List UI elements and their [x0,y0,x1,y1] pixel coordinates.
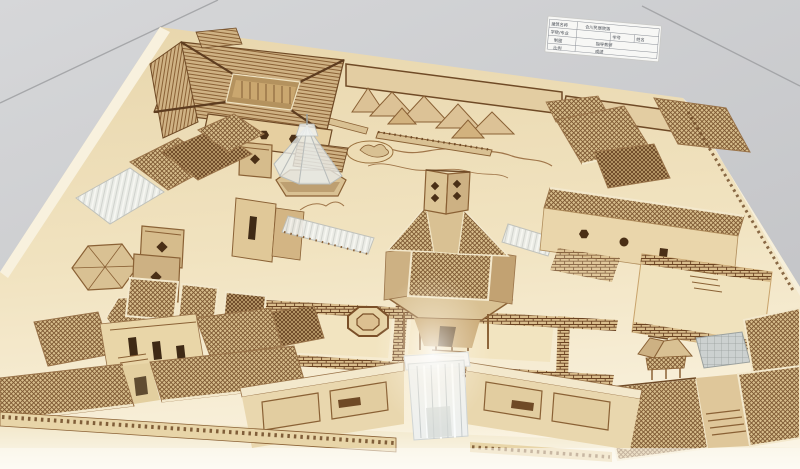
box-tower [239,142,272,178]
round-window [620,238,629,247]
cupola-face [424,170,448,214]
gable-roof [196,28,242,48]
lattice-panel [126,278,178,320]
glass-skylight [696,332,750,368]
flash-hotspot [375,274,491,430]
bottom-glare [0,448,800,469]
model-photo: 建筑名称 合川民居院落 学院/专业 学号 姓名 制图 指导教师 比例 成绩 [0,0,800,469]
roof-cap [296,124,318,136]
door-slot [134,376,148,396]
brick-path [556,316,570,378]
model-photo-canvas: 建筑名称 合川民居院落 学院/专业 学号 姓名 制图 指导教师 比例 成绩 [0,0,800,469]
big-lattice-roof [738,366,800,446]
